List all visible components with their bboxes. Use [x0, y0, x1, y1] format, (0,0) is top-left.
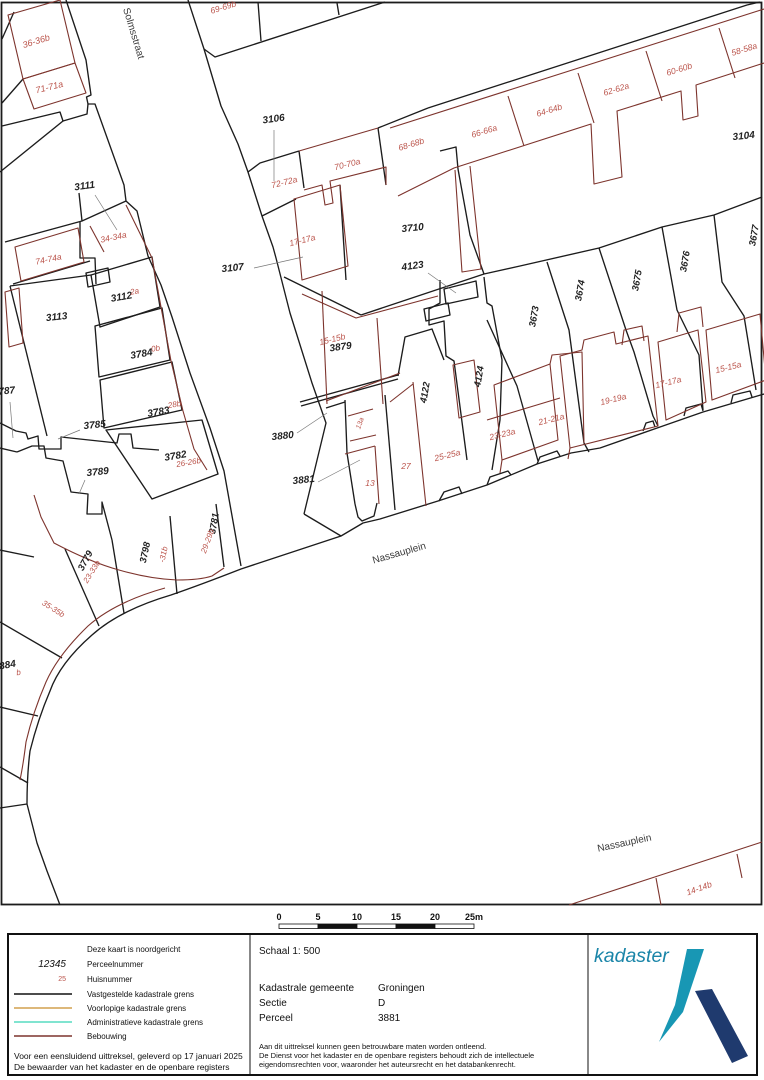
svg-text:Kadastrale gemeente: Kadastrale gemeente	[259, 983, 355, 994]
svg-text:25m: 25m	[465, 912, 483, 922]
svg-text:Voor een eensluidend uittrekse: Voor een eensluidend uittreksel, gelever…	[14, 1051, 243, 1061]
svg-text:25: 25	[58, 976, 66, 983]
svg-text:13: 13	[365, 478, 375, 488]
svg-text:Perceel: Perceel	[259, 1013, 293, 1024]
svg-text:eigendomsrechten voor, waarond: eigendomsrechten voor, waaronder het aut…	[259, 1060, 516, 1069]
svg-text:Bebouwing: Bebouwing	[87, 1032, 127, 1041]
svg-text:kadaster: kadaster	[594, 945, 670, 967]
svg-text:Schaal 1: 500: Schaal 1: 500	[259, 946, 321, 957]
svg-text:787: 787	[0, 385, 16, 398]
svg-text:3881: 3881	[378, 1013, 401, 1024]
svg-text:12345: 12345	[38, 959, 66, 970]
svg-text:10: 10	[352, 912, 362, 922]
svg-text:Huisnummer: Huisnummer	[87, 975, 133, 984]
svg-text:Perceelnummer: Perceelnummer	[87, 960, 144, 969]
svg-text:De Dienst voor het kadaster en: De Dienst voor het kadaster en de openba…	[259, 1051, 534, 1060]
svg-text:5: 5	[315, 912, 320, 922]
svg-text:20: 20	[430, 912, 440, 922]
svg-text:3113: 3113	[45, 311, 68, 324]
svg-text:Administratieve kadastrale gre: Administratieve kadastrale grens	[87, 1018, 203, 1027]
svg-text:D: D	[378, 998, 385, 1009]
svg-text:27: 27	[400, 461, 411, 471]
svg-text:15: 15	[391, 912, 401, 922]
svg-text:Voorlopige kadastrale grens: Voorlopige kadastrale grens	[87, 1004, 186, 1013]
svg-text:0: 0	[276, 912, 281, 922]
svg-text:Deze kaart is noordgericht: Deze kaart is noordgericht	[87, 945, 181, 954]
svg-text:Groningen: Groningen	[378, 983, 425, 994]
svg-text:Sectie: Sectie	[259, 998, 287, 1009]
svg-text:De bewaarder van het kadaster: De bewaarder van het kadaster en de open…	[14, 1062, 229, 1072]
svg-text:Vastgestelde kadastrale grens: Vastgestelde kadastrale grens	[87, 990, 194, 999]
svg-text:Aan dit uittreksel kunnen geen: Aan dit uittreksel kunnen geen betrouwba…	[259, 1042, 486, 1051]
